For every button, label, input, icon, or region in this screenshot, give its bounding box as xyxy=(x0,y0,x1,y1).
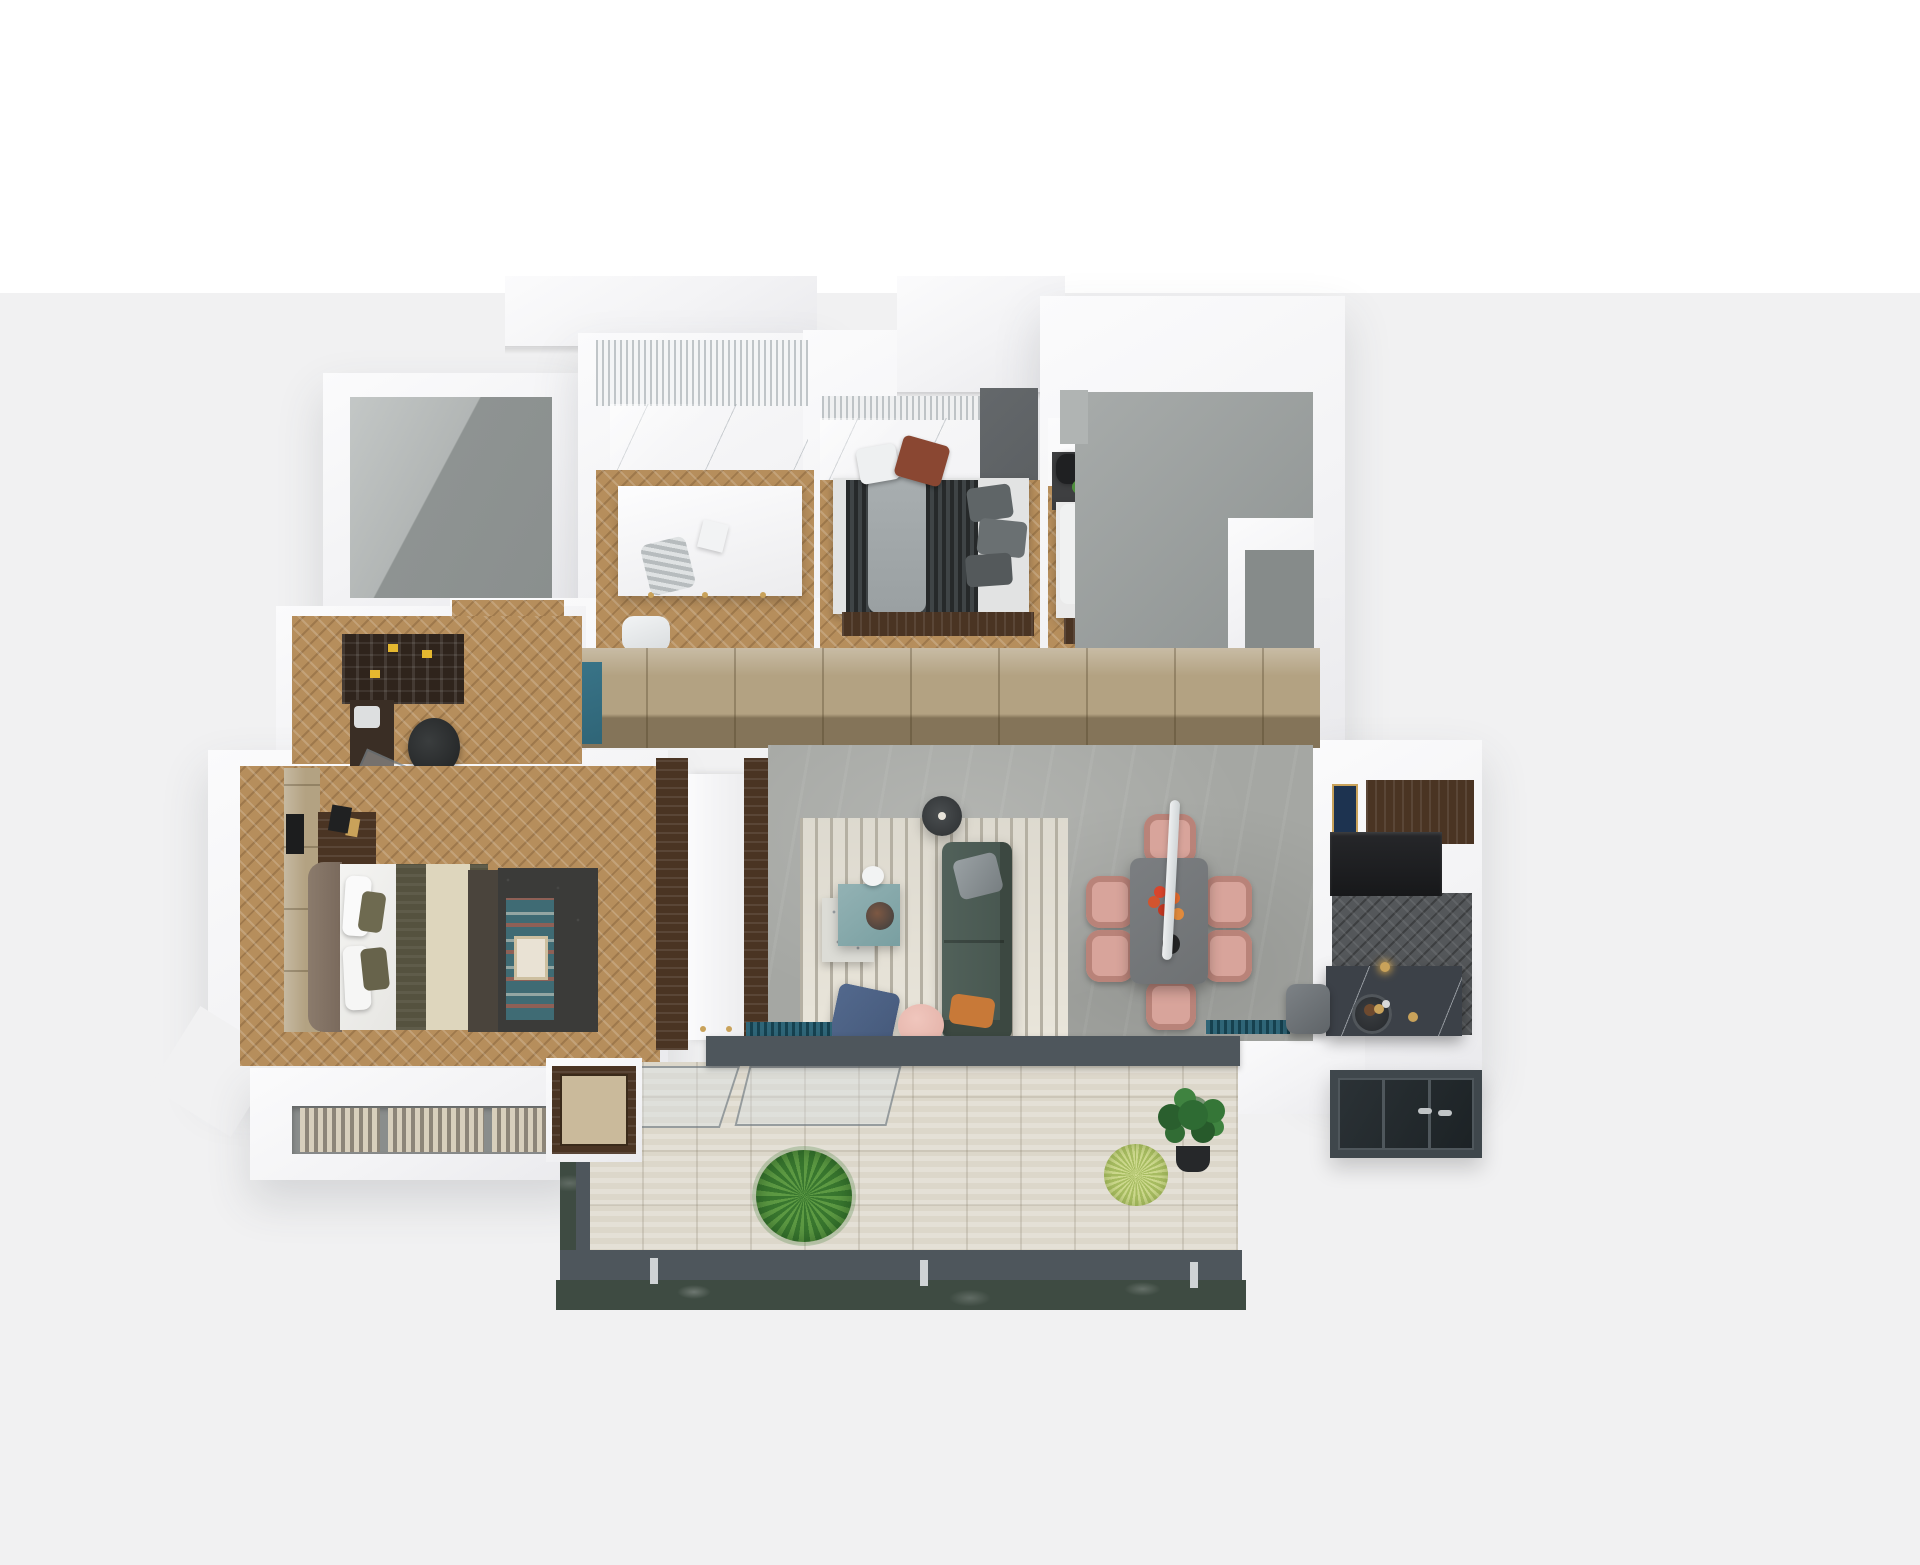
bed-mid-cushion-white xyxy=(855,443,901,485)
bed-mid-throw xyxy=(868,477,926,613)
bedroom-mid-curtain xyxy=(822,396,982,420)
window-bay-inner xyxy=(560,1074,628,1146)
bookshelf-yellow-books xyxy=(388,644,398,652)
master-cushion-olive-2 xyxy=(360,947,390,991)
utility-balcony-glass xyxy=(1338,1078,1474,1150)
sofa-seam xyxy=(944,940,1004,943)
railing-posts xyxy=(650,1258,658,1284)
floorplan-render xyxy=(0,0,1920,1565)
corridor-wardrobes xyxy=(560,648,1320,748)
fiddle-pot xyxy=(1176,1146,1210,1172)
bed-mid-pillow-1 xyxy=(966,483,1014,523)
kitchen-island xyxy=(1326,966,1462,1036)
coffee-table-deco xyxy=(862,866,884,886)
dining-chair-right-2 xyxy=(1204,930,1252,982)
ac-unit-2 xyxy=(388,1108,484,1152)
kitchen-counter-black xyxy=(1330,832,1442,896)
dining-chair-left-1 xyxy=(1086,876,1134,928)
ac-unit-1 xyxy=(300,1108,380,1152)
bar-stool xyxy=(1286,984,1330,1034)
balcony-plant-fiddle xyxy=(1178,1100,1208,1130)
master-headboard xyxy=(308,862,342,1032)
tv-wall-column-left xyxy=(656,758,688,1050)
sofa-pillow-orange xyxy=(948,993,996,1029)
balcony-door-pane-2 xyxy=(735,1066,902,1126)
entry-gray-notch xyxy=(1060,390,1088,444)
island-pendant-bulbs xyxy=(1380,962,1390,972)
dressing-stool xyxy=(622,616,670,652)
bedroom-mid-tv-bench xyxy=(842,612,1034,636)
desk-printer xyxy=(354,706,380,728)
master-breakfast-tray xyxy=(514,936,548,980)
dining-chair-bottom xyxy=(1146,980,1196,1030)
rug-basket xyxy=(866,902,894,930)
dining-chair-right-1 xyxy=(1204,876,1252,928)
floor-lamp-bulb xyxy=(938,812,946,820)
master-wall-art xyxy=(286,814,304,854)
tv-panel-gold-feet xyxy=(700,1026,706,1032)
tv-panel xyxy=(688,774,744,1040)
duct-shaft-room xyxy=(350,397,552,598)
bedroom-mid-wardrobe xyxy=(980,388,1038,484)
bed-mid-pillow-3 xyxy=(965,552,1013,587)
master-blanket-cream xyxy=(426,864,470,1030)
island-coffee-cup xyxy=(1364,1004,1376,1016)
dressing-curtain xyxy=(596,340,808,406)
balcony-beam-top xyxy=(706,1036,1240,1066)
balcony-plant-bushy xyxy=(756,1150,852,1242)
dining-chair-left-2 xyxy=(1086,930,1134,982)
tv-wall-column-right xyxy=(744,758,768,1050)
balcony-beam-bottom xyxy=(560,1250,1242,1282)
utility-glass-mullions xyxy=(1382,1078,1385,1150)
study-bookshelf xyxy=(342,634,464,704)
balcony-plant-spiky xyxy=(1104,1144,1168,1206)
entry-step-gray xyxy=(1245,550,1314,654)
balcony-marble-bottom xyxy=(556,1280,1246,1310)
teal-bench-kitchen xyxy=(1206,1020,1290,1034)
utility-faucet xyxy=(1418,1108,1432,1114)
